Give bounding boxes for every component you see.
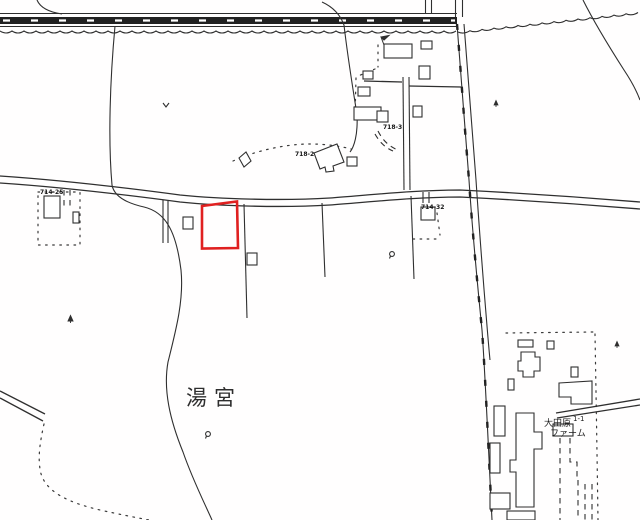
compound-road-west bbox=[364, 81, 402, 82]
parcel-label-714-32: 714-32 bbox=[421, 204, 444, 211]
building bbox=[490, 493, 510, 509]
building bbox=[183, 217, 193, 229]
farm-lot-number: 1-1 bbox=[573, 415, 584, 423]
building bbox=[571, 367, 578, 377]
building bbox=[413, 106, 422, 117]
top-road bbox=[0, 0, 463, 27]
diagonal-road bbox=[457, 24, 492, 520]
building bbox=[44, 196, 60, 218]
building bbox=[508, 379, 514, 390]
center-boundary bbox=[233, 2, 357, 161]
building bbox=[358, 87, 370, 96]
highlight-parcel bbox=[202, 202, 238, 249]
farm-name-line1: 大田原 bbox=[544, 417, 571, 429]
building bbox=[510, 413, 542, 507]
building bbox=[518, 340, 533, 347]
north-compound bbox=[354, 36, 461, 191]
broadleaf-tree-icon bbox=[206, 432, 211, 439]
conifer-tree-icon bbox=[615, 342, 619, 349]
compound-road-south-left bbox=[403, 77, 404, 190]
field-line-2 bbox=[322, 203, 325, 277]
compound-road-east bbox=[409, 86, 461, 87]
building bbox=[314, 144, 344, 172]
farm-fence-2 bbox=[570, 438, 577, 479]
building bbox=[247, 253, 257, 265]
building bbox=[494, 406, 505, 436]
broadleaf-tree-icon bbox=[390, 252, 395, 259]
tree-circle bbox=[390, 252, 395, 257]
scrub-symbol-icon bbox=[163, 103, 169, 107]
farm-name-line2: ファーム bbox=[550, 428, 586, 439]
building bbox=[363, 71, 373, 79]
building bbox=[347, 157, 357, 166]
main-road-top-edge bbox=[0, 176, 640, 202]
farm-road-bottom bbox=[557, 405, 640, 418]
building bbox=[384, 44, 412, 58]
building bbox=[377, 111, 388, 122]
southwest-road bbox=[0, 391, 149, 520]
main-road-bottom-edge bbox=[0, 183, 640, 209]
field-boundaries bbox=[163, 196, 414, 318]
tree-circle bbox=[206, 432, 211, 437]
wavy-right bbox=[458, 13, 638, 34]
building bbox=[559, 381, 592, 404]
dashed-arc-outer bbox=[378, 131, 398, 150]
farm-road-top bbox=[556, 399, 640, 413]
diagonal-road-left-edge bbox=[457, 24, 492, 520]
building bbox=[490, 443, 500, 473]
dashed-arc-inner bbox=[375, 134, 393, 151]
building bbox=[547, 341, 554, 349]
field-line-3 bbox=[411, 196, 414, 279]
conifer-tree-icon bbox=[494, 101, 498, 108]
farm-dotted-north bbox=[506, 332, 593, 333]
parcel-label-718-3: 718-3 bbox=[383, 124, 402, 131]
tree-tail bbox=[206, 436, 207, 439]
parcel-label-718-2: 718-2 bbox=[295, 151, 314, 158]
parcel-label-714-25: 714-25 bbox=[40, 189, 63, 196]
top-left-join-curve bbox=[37, 0, 62, 14]
farm-dotted-east bbox=[595, 334, 598, 520]
main-road bbox=[0, 176, 640, 209]
compound-road-south-right bbox=[409, 77, 410, 190]
conifer-tree-icon bbox=[68, 316, 73, 324]
wavy-left bbox=[0, 31, 456, 33]
place-name-label: 湯宮 bbox=[186, 386, 242, 410]
west-field-curve bbox=[110, 26, 212, 520]
map-canvas: 718-2 718-3 714-25 714-32 湯宮 大田原 1-1 ファー… bbox=[0, 0, 640, 520]
farm-name-label: 大田原 1-1 ファーム bbox=[544, 415, 586, 439]
center-boundary-lower bbox=[344, 25, 357, 152]
dotted-boundary-v bbox=[437, 213, 440, 235]
building bbox=[73, 212, 79, 223]
sw-dotted-path bbox=[39, 424, 149, 520]
parcel-718-2-houses bbox=[239, 144, 357, 172]
parcel-714-25 bbox=[38, 190, 80, 245]
map-symbols bbox=[68, 101, 619, 439]
building bbox=[419, 66, 430, 79]
tree-tail bbox=[390, 256, 391, 259]
building bbox=[518, 352, 540, 377]
building bbox=[239, 152, 251, 167]
building bbox=[421, 41, 432, 49]
cadastral-map: 718-2 718-3 714-25 714-32 湯宮 大田原 1-1 ファー… bbox=[0, 0, 640, 520]
building bbox=[507, 511, 535, 520]
